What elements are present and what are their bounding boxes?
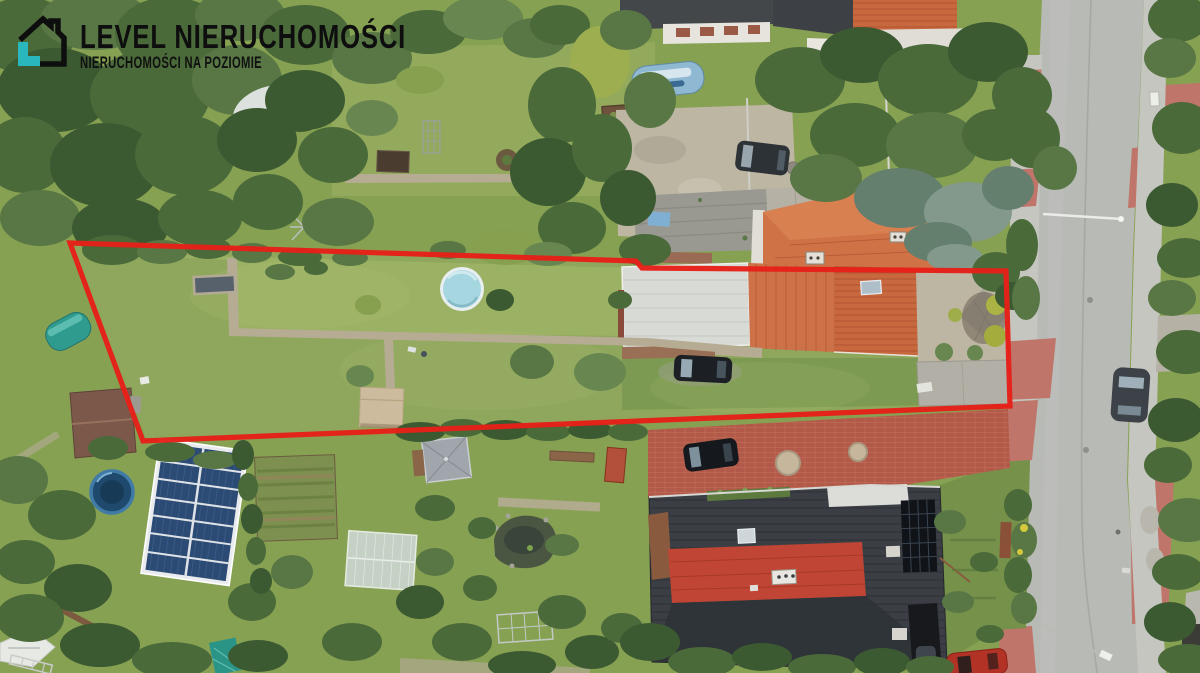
parked-suv-gravel [734,140,790,176]
rust-roof-strip [648,512,672,580]
red-lounger [605,447,627,483]
parked-grey-car-street [1110,367,1151,423]
skylight [738,529,756,544]
agency-logo: LEVEL NIERUCHOMOŚCI NIERUCHOMOŚCI NA POZ… [14,12,498,73]
skylight [861,280,882,294]
raised-bed [194,275,236,294]
aerial-photo-svg [0,0,1200,673]
red-roof-section [668,542,866,603]
mailbox [1150,92,1160,106]
parked-black-car-lawn [673,355,732,384]
chimney [890,232,906,242]
vegetable-beds [255,455,338,542]
house-logo-icon [14,12,72,72]
dark-garden-shed [377,150,410,172]
yellow-shrub [984,325,1006,347]
logo-title: LEVEL NIERUCHOMOŚCI [80,20,406,53]
orange-ribbed-roof [748,263,834,352]
tan-shed [359,387,403,428]
greenhouse [345,531,417,591]
wood-bench [550,451,594,462]
aerial-photo: LEVEL NIERUCHOMOŚCI NIERUCHOMOŚCI NA POZ… [0,0,1200,673]
grey-pavilion [422,436,472,482]
roof-solar-panels [901,499,937,572]
logo-subtitle: NIERUCHOMOŚCI NA POZIOMIE [80,54,364,73]
